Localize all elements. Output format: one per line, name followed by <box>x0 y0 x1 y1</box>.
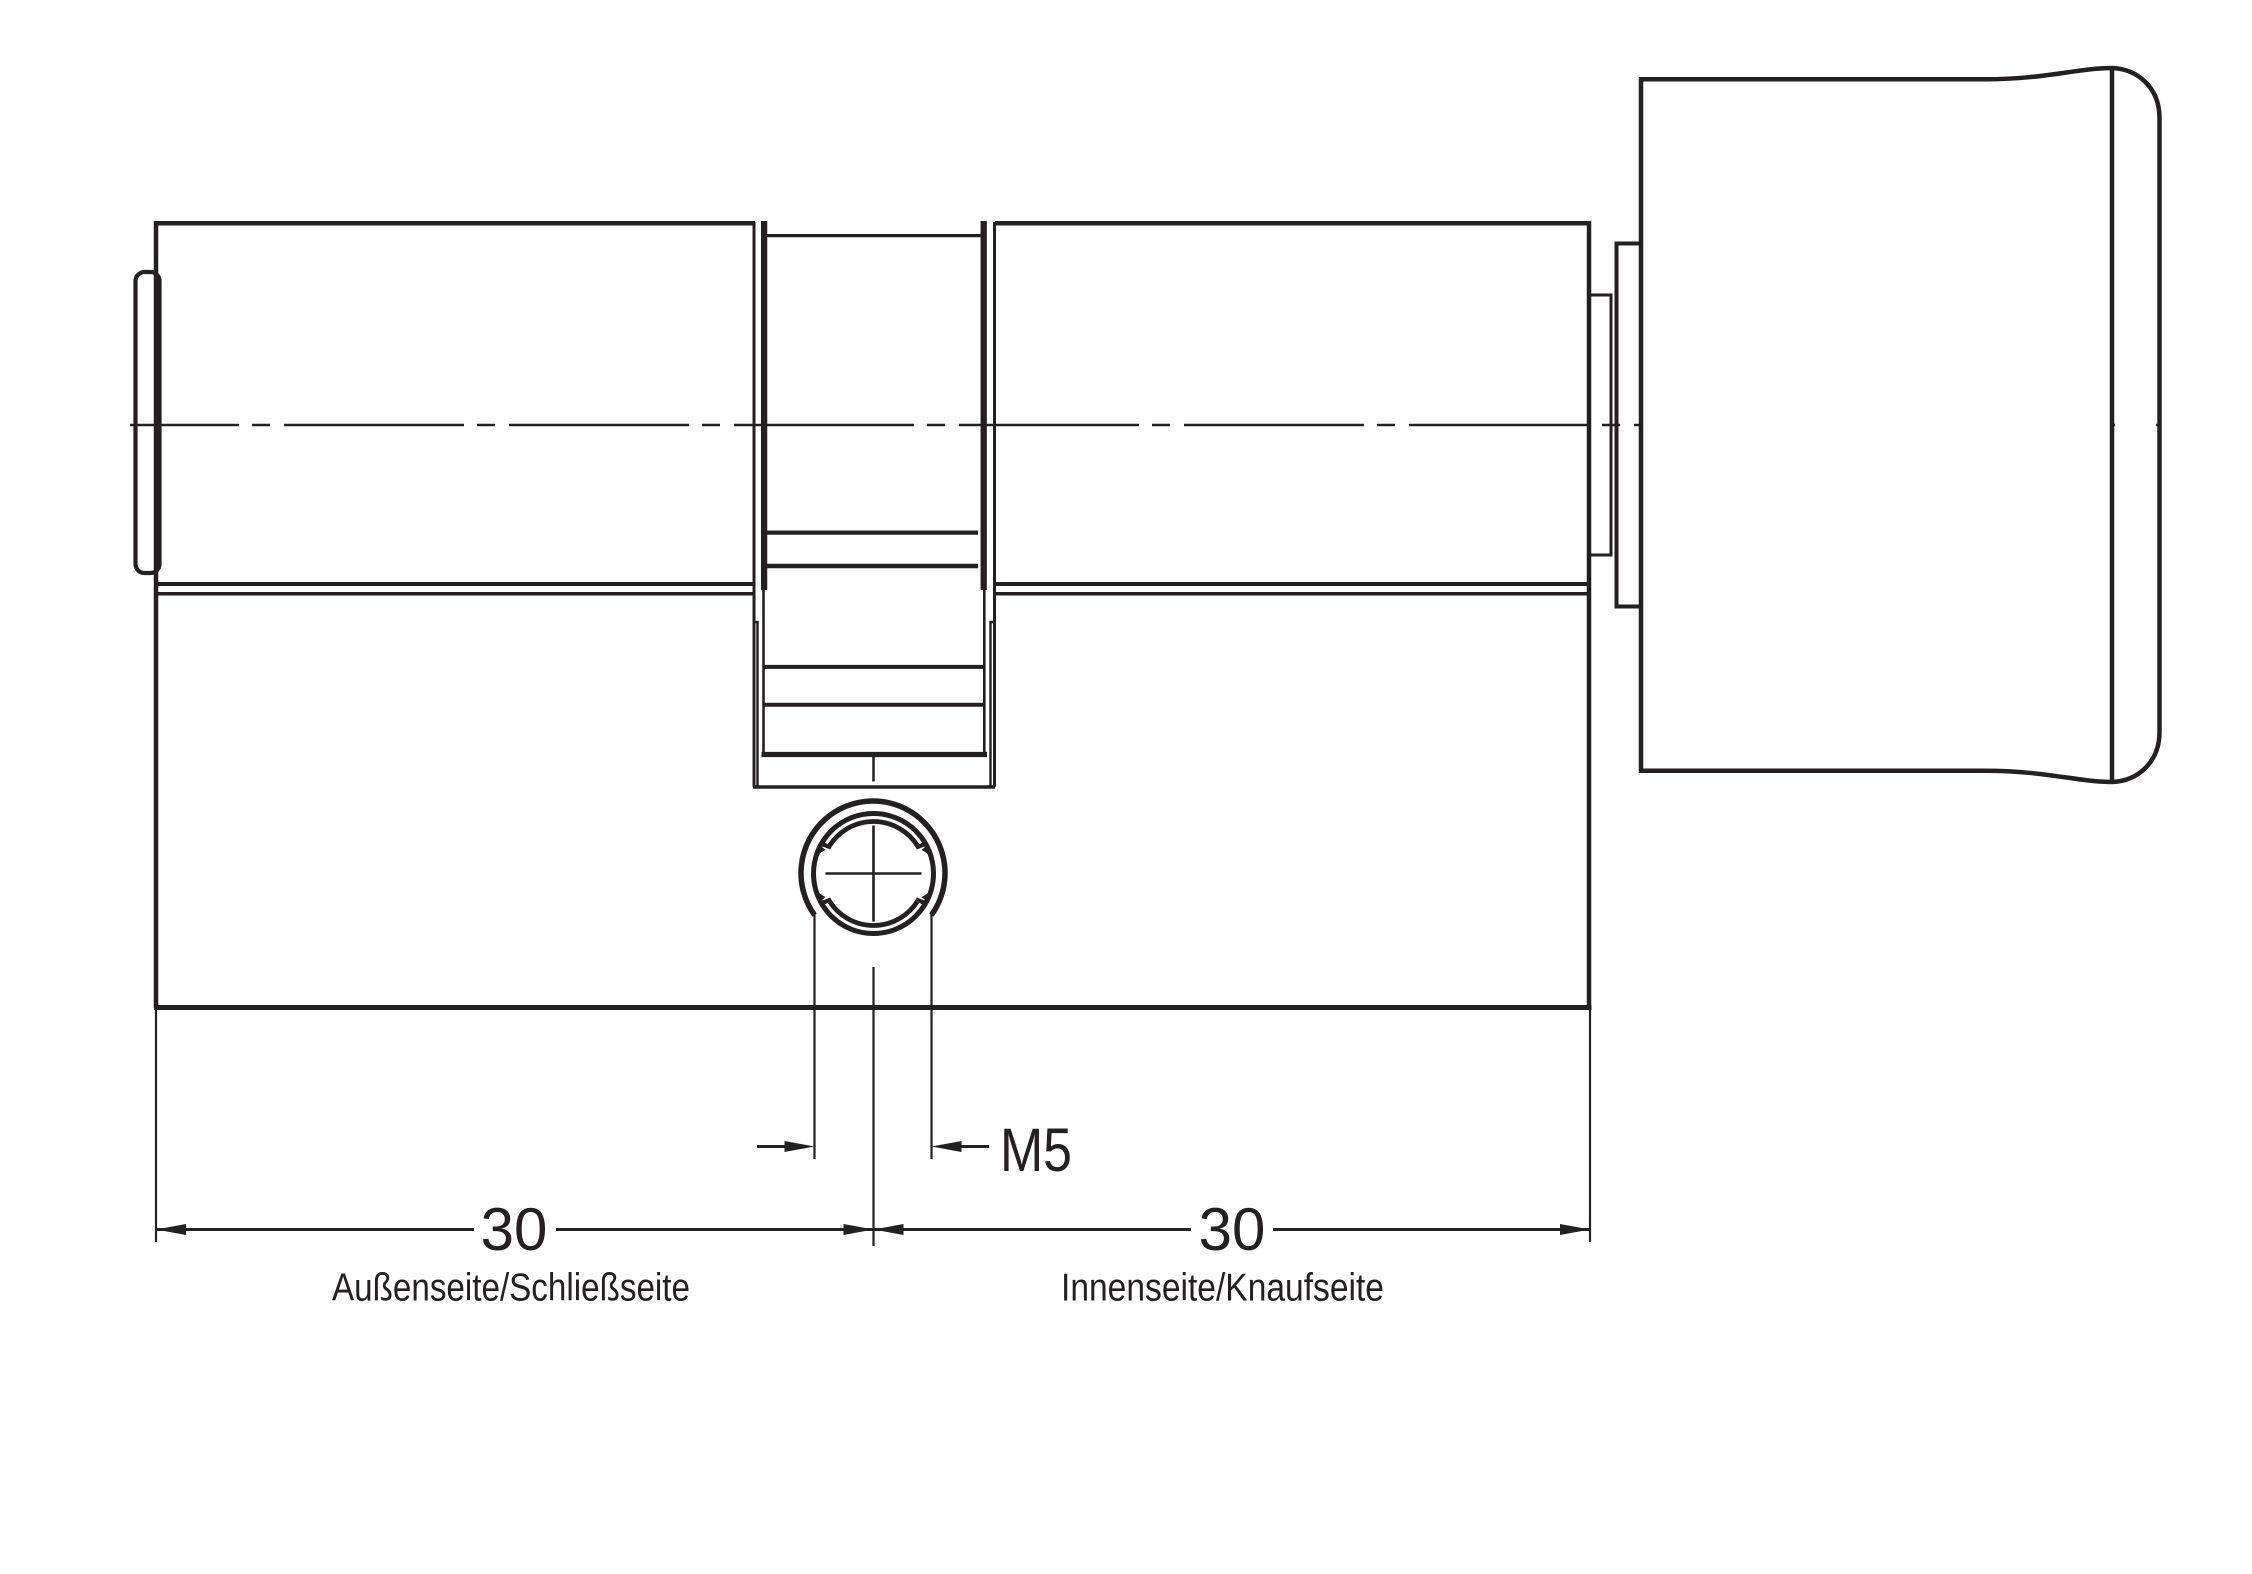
svg-text:M5: M5 <box>1000 1116 1072 1185</box>
svg-text:Innenseite/Knaufseite: Innenseite/Knaufseite <box>1061 1267 1384 1310</box>
svg-text:30: 30 <box>1199 1196 1266 1263</box>
svg-text:30: 30 <box>481 1196 548 1263</box>
svg-text:Außenseite/Schließseite: Außenseite/Schließseite <box>332 1267 690 1310</box>
